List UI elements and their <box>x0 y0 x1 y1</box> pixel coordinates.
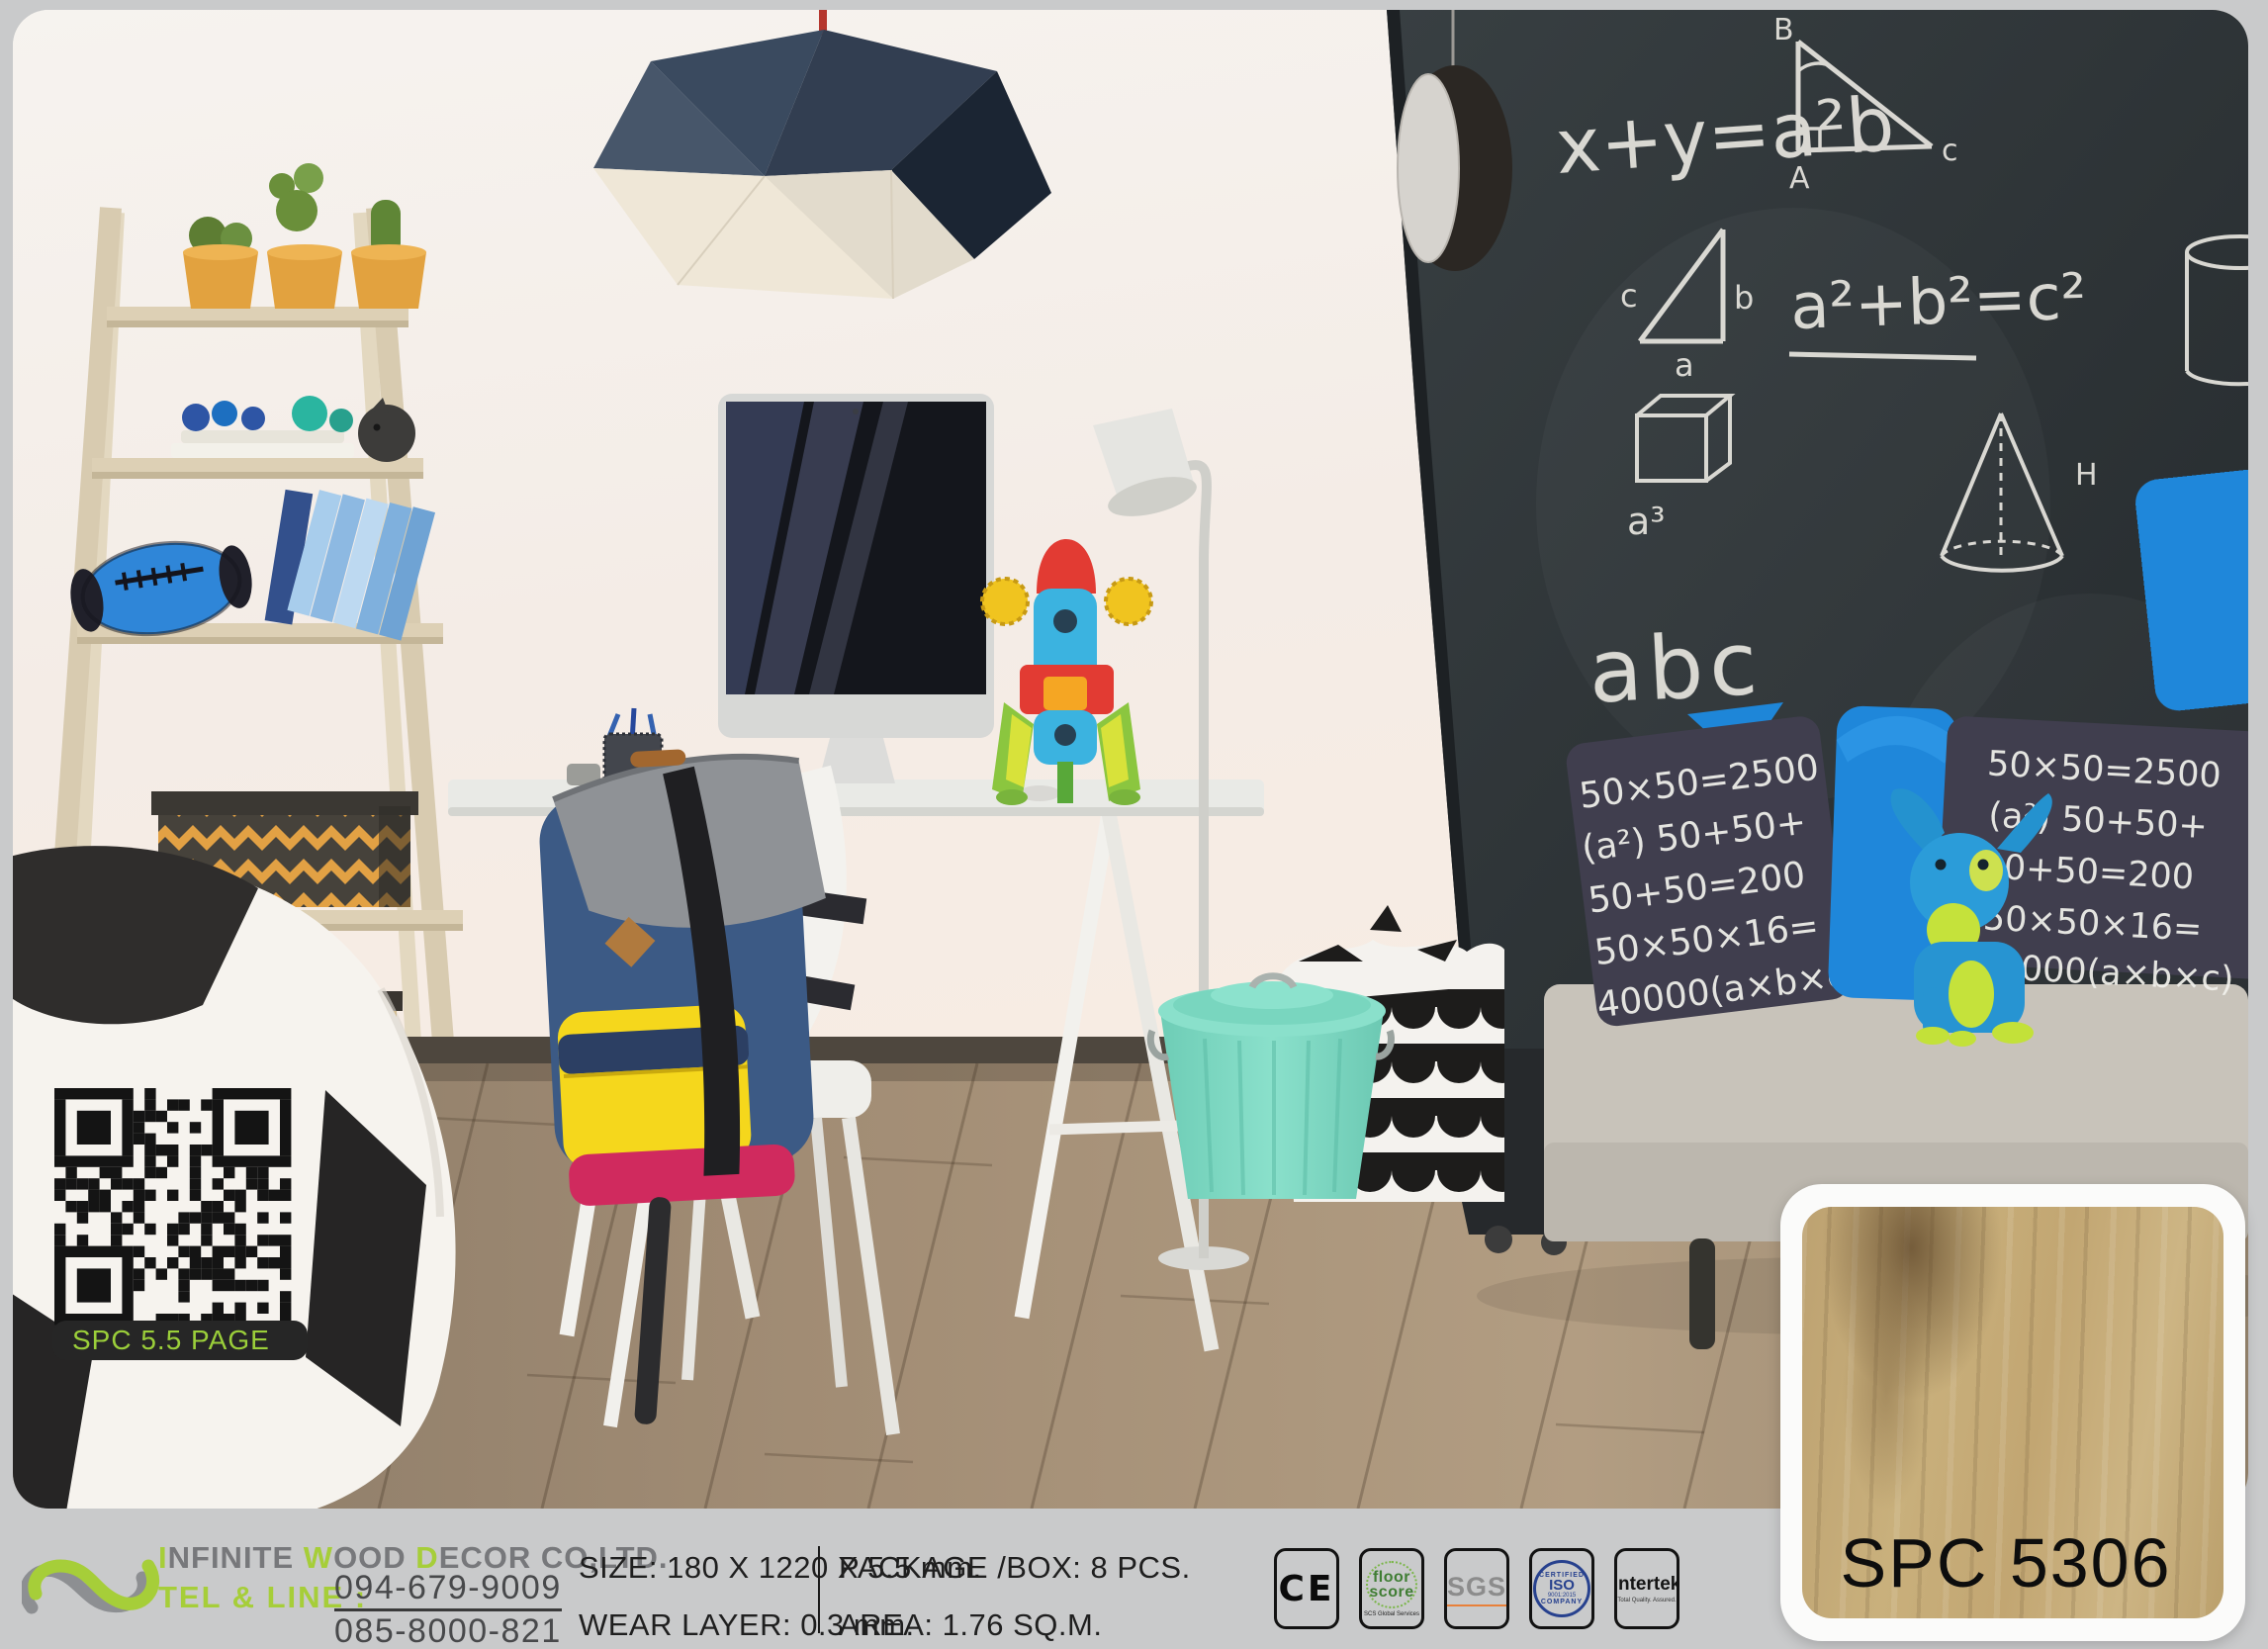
phone-number-2: 085-8000-821 <box>334 1613 562 1649</box>
wood-swatch: SPC 5306 <box>1802 1207 2223 1618</box>
intertek-badge-icon: intertek Total Quality. Assured. <box>1614 1548 1679 1629</box>
qr-caption-label: SPC 5.5 PAGE <box>72 1325 270 1356</box>
ce-label: CE <box>1278 1569 1334 1609</box>
phone-number-1: 094-679-9009 <box>334 1570 562 1611</box>
company-seg: W <box>304 1540 333 1575</box>
intertek-label: intertek <box>1614 1574 1679 1596</box>
svg-text:c: c <box>1620 277 1638 315</box>
mint-bucket <box>1150 976 1391 1199</box>
svg-text:a³: a³ <box>1627 500 1666 543</box>
iso-center: ISO <box>1549 1579 1575 1593</box>
svg-text:H: H <box>2075 458 2098 493</box>
spec-area: AREA: 1.76 SQ.M. <box>839 1607 1102 1643</box>
backpack <box>535 742 841 1207</box>
spec-package: PACKAGE /BOX: 8 PCS. <box>839 1550 1191 1586</box>
floorscore-word2: score <box>1369 1585 1413 1600</box>
floorscore-word1: floor <box>1373 1570 1410 1585</box>
sgs-badge-icon: SGS <box>1444 1548 1509 1629</box>
sgs-label: SGS <box>1445 1572 1508 1606</box>
floorscore-sub: SCS Global Services <box>1364 1611 1419 1617</box>
infinity-logo-icon <box>22 1536 160 1635</box>
iso-arc-bottom: COMPANY <box>1541 1599 1583 1605</box>
svg-text:c: c <box>1942 134 1958 168</box>
phone-numbers: 094-679-9009 085-8000-821 <box>334 1570 562 1649</box>
chalk-equation-2: a²+b²=c² <box>1789 261 2088 344</box>
flyer-page: x+y=a²b B A c <box>0 0 2268 1649</box>
svg-text:a: a <box>1675 346 1694 384</box>
chalk-abc: abc <box>1587 612 1766 723</box>
iso-seal: CERTIFIED ISO 9001:2015 COMPANY <box>1533 1560 1590 1617</box>
product-code: SPC 5306 <box>1802 1523 2210 1603</box>
svg-text:B: B <box>1773 13 1794 47</box>
intertek-sub: Total Quality. Assured. <box>1617 1598 1676 1603</box>
svg-text:b: b <box>1734 279 1754 317</box>
spec-divider <box>818 1546 820 1633</box>
iso-badge-icon: CERTIFIED ISO 9001:2015 COMPANY <box>1529 1548 1594 1629</box>
qr-caption: SPC 5.5 PAGE <box>52 1321 308 1360</box>
ce-badge-icon: CE <box>1274 1548 1339 1629</box>
pillow-math-left: 50×50=2500 (a²) 50+50+ 50+50=200 50×50×1… <box>1565 713 1863 1029</box>
floorscore-badge-icon: floor score SCS Global Services <box>1359 1548 1424 1629</box>
floorscore-circle: floor score <box>1366 1561 1417 1608</box>
company-seg: I <box>158 1540 168 1575</box>
svg-text:A: A <box>1789 161 1810 196</box>
product-swatch-card: SPC 5306 <box>1780 1184 2245 1641</box>
company-seg: NFINITE <box>168 1540 304 1575</box>
